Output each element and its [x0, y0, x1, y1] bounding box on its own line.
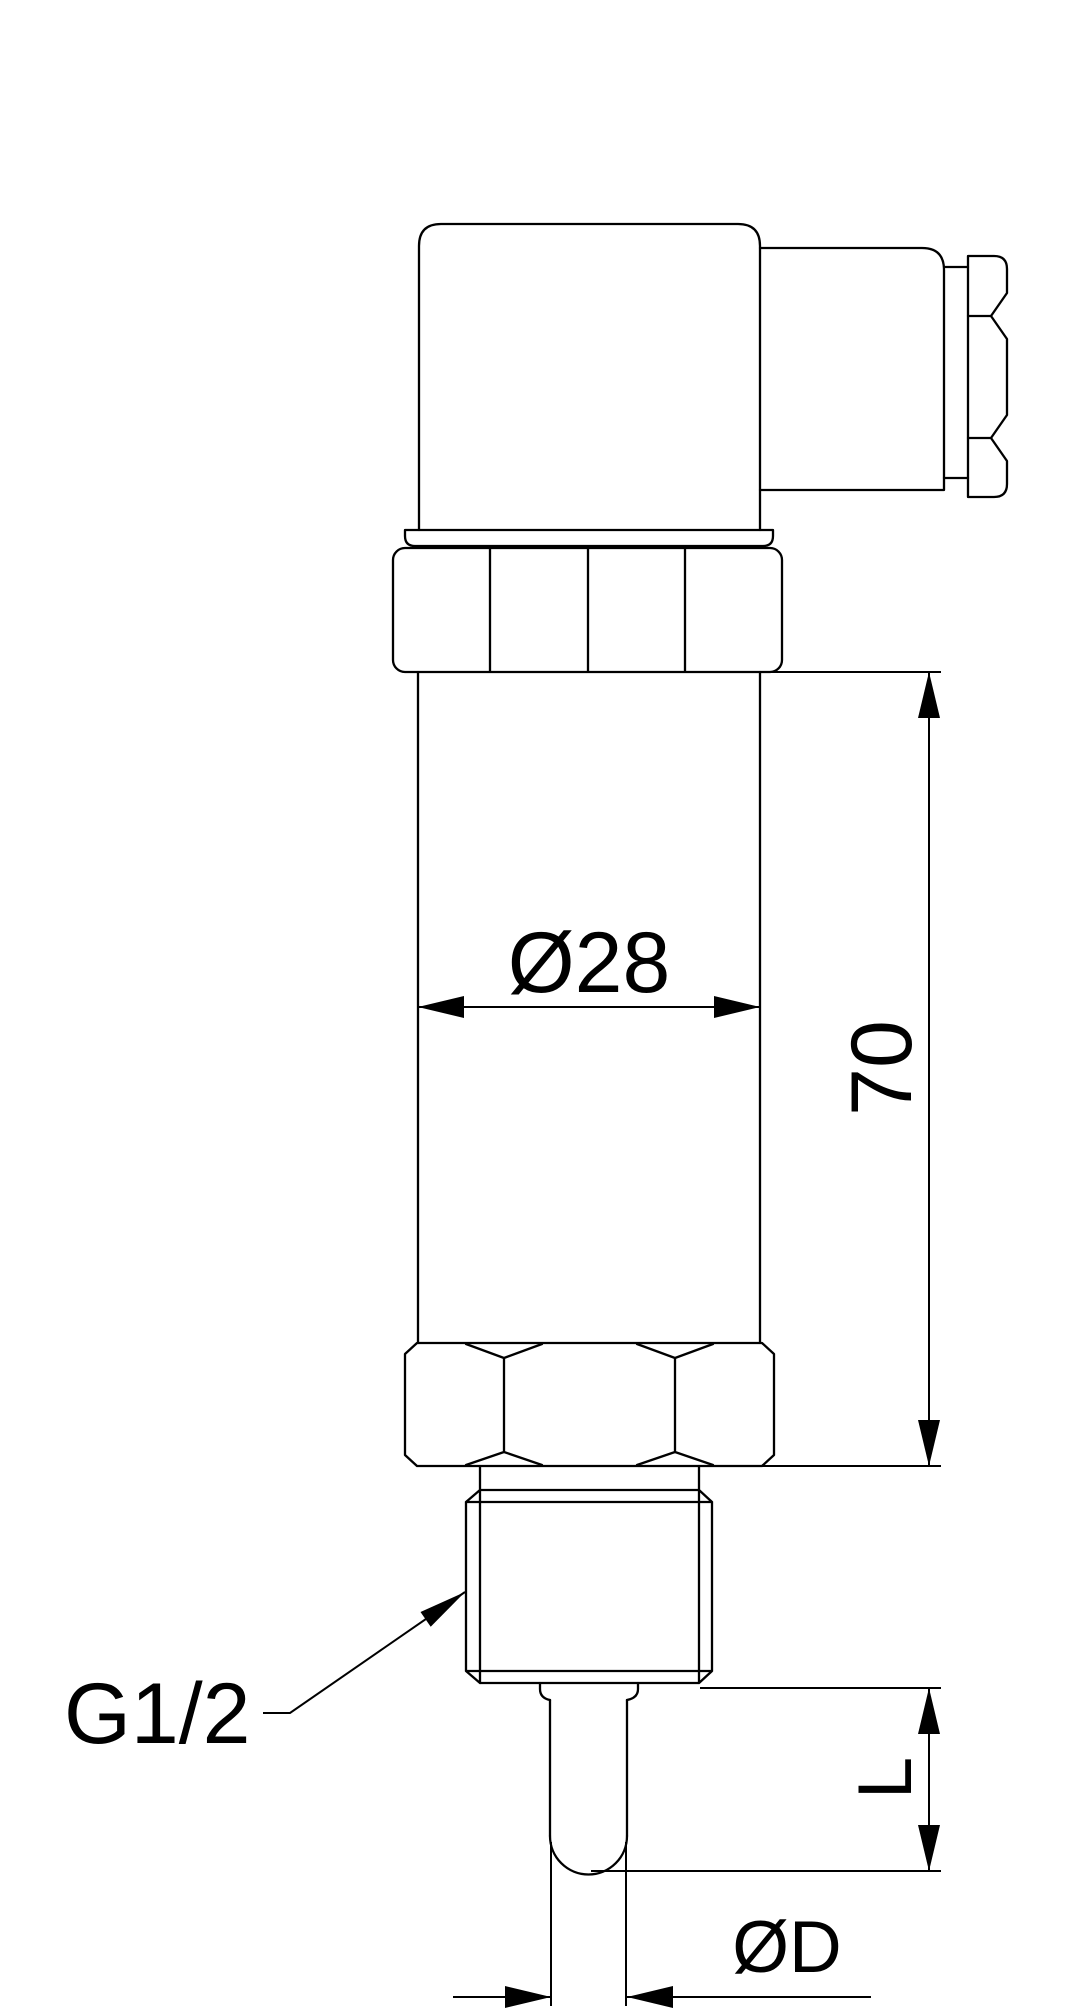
- dimension-probe-diameter: ØD: [453, 1842, 871, 2008]
- dimension-body-length: 70: [762, 672, 941, 1466]
- arrowhead-left: [418, 996, 464, 1018]
- label-body-length: 70: [834, 1020, 930, 1116]
- gland-neck: [944, 267, 968, 478]
- technical-drawing-canvas: Ø28 70 G1/2 L ØD: [0, 0, 1070, 2016]
- dimension-insertion-length: L: [591, 1688, 941, 1871]
- probe-tube: [550, 1700, 627, 1836]
- drawing-page: Ø28 70 G1/2 L ØD: [0, 0, 1070, 2016]
- arrowhead-up: [918, 672, 940, 718]
- thread-section: [466, 1466, 712, 1683]
- connector-housing: [419, 224, 760, 530]
- housing-flange: [405, 530, 773, 546]
- label-body-diameter: Ø28: [508, 915, 671, 1011]
- cable-gland-nut: [968, 256, 1007, 497]
- connector-side-block: [760, 248, 944, 490]
- arrowhead-up: [918, 1688, 940, 1734]
- probe-tip: [550, 1836, 627, 1875]
- arrowhead-left: [627, 1986, 673, 2008]
- arrowhead-right: [505, 1986, 551, 2008]
- arrowhead-down: [918, 1420, 940, 1466]
- lower-hex-nut: [405, 1343, 774, 1466]
- arrowhead-down: [918, 1825, 940, 1871]
- label-thread-size: G1/2: [64, 1666, 250, 1762]
- upper-hex-facet-lines: [490, 549, 685, 671]
- dimension-body-diameter: Ø28: [418, 915, 760, 1018]
- callout-thread-size: G1/2: [64, 1592, 465, 1762]
- label-probe-diameter: ØD: [732, 1907, 842, 1988]
- lower-hex-facet-lines: [466, 1344, 713, 1465]
- arrowhead-right: [714, 996, 760, 1018]
- leader-arrowhead: [421, 1592, 466, 1627]
- probe-collar: [540, 1683, 638, 1700]
- cable-gland-facet-lines: [968, 316, 991, 438]
- label-insertion-length: L: [843, 1757, 928, 1799]
